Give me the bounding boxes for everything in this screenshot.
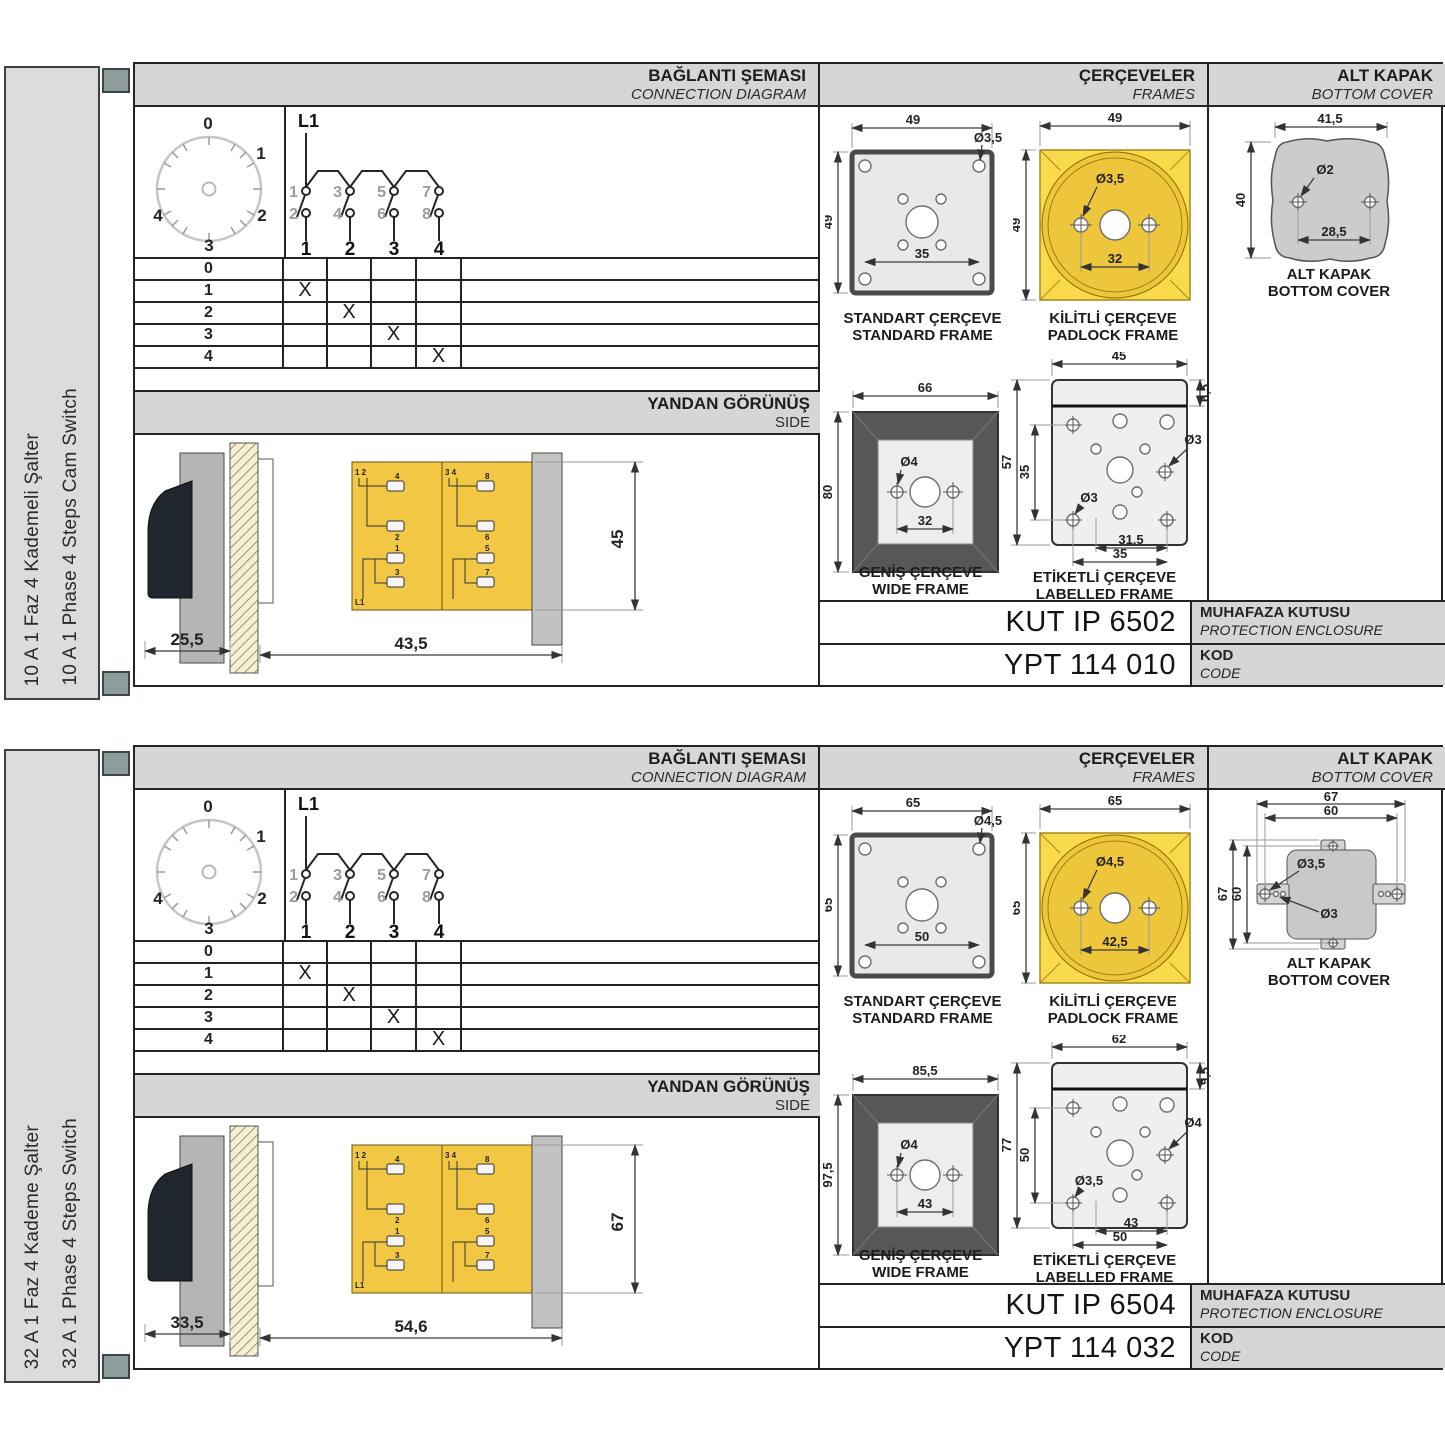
dim-hole-spacing: 35 bbox=[915, 246, 929, 261]
module-label-2: 3 4 bbox=[445, 1151, 457, 1160]
dial-pos-3: 3 bbox=[204, 919, 213, 938]
table-cell bbox=[372, 303, 417, 323]
dim-frame-height: 49 bbox=[1013, 218, 1023, 232]
dial-pos-2: 2 bbox=[257, 206, 266, 225]
contact-1: 1 bbox=[289, 867, 298, 884]
table-cell bbox=[417, 281, 462, 301]
header-connection-tr: BAĞLANTI ŞEMASI bbox=[135, 66, 806, 86]
standard-frame-caption: STANDART ÇERÇEVE STANDARD FRAME bbox=[825, 993, 1020, 1027]
caption-tr: ALT KAPAK bbox=[1213, 955, 1445, 972]
x-mark: X bbox=[372, 1008, 417, 1028]
terminal-1: 1 bbox=[395, 544, 400, 553]
row-label: 4 bbox=[135, 347, 284, 367]
x-mark: X bbox=[372, 325, 417, 345]
bottom-cover-caption: ALT KAPAK BOTTOM COVER bbox=[1213, 266, 1445, 300]
dim-hole-dia: Ø3,5 bbox=[1096, 171, 1124, 186]
dim-frame-width: 49 bbox=[906, 112, 920, 127]
contact-1: 1 bbox=[289, 184, 298, 201]
header-side-tr: YANDAN GÖRÜNÜŞ bbox=[135, 394, 810, 414]
connection-schematic: L1 1 3 5 7 2 bbox=[286, 790, 820, 940]
contact-3: 3 bbox=[333, 184, 342, 201]
caption-tr: GENİŞ ÇERÇEVE bbox=[823, 1247, 1018, 1264]
padlock-frame-caption: KİLİTLİ ÇERÇEVE PADLOCK FRAME bbox=[1013, 310, 1213, 344]
contact-4: 4 bbox=[333, 889, 342, 906]
front-plate bbox=[258, 459, 273, 603]
enclosure-label-en: PROTECTION ENCLOSURE bbox=[1200, 622, 1445, 639]
dial-pos-4: 4 bbox=[153, 206, 163, 225]
header-frames-en: FRAMES bbox=[820, 86, 1195, 104]
dim-cover-inner-w: 60 bbox=[1324, 803, 1338, 818]
dim-frame-width: 65 bbox=[1108, 793, 1122, 808]
dim-hole-dia: Ø4,5 bbox=[1096, 854, 1124, 869]
table-cell bbox=[328, 1008, 372, 1028]
dim-hole-dia: Ø3,5 bbox=[974, 130, 1002, 145]
terminal-6: 6 bbox=[485, 533, 490, 542]
header-side-view: YANDAN GÖRÜNÜŞ SIDE bbox=[135, 390, 820, 435]
dim-handle-depth: 25,5 bbox=[170, 630, 203, 649]
table-cell bbox=[372, 964, 417, 984]
table-cell bbox=[417, 303, 462, 323]
terminal-1: 1 bbox=[395, 1227, 400, 1236]
x-mark: X bbox=[284, 281, 328, 301]
output-1: 1 bbox=[301, 922, 312, 940]
product-title-tr: 32 A 1 Faz 4 Kademe Şalter bbox=[22, 1125, 44, 1369]
dim-cover-width: 41,5 bbox=[1317, 112, 1342, 126]
table-cell bbox=[372, 281, 417, 301]
dim-strip-height: 6,5 bbox=[1197, 384, 1212, 402]
output-2: 2 bbox=[345, 239, 356, 257]
row-label: 1 bbox=[135, 281, 284, 301]
table-row: 3 X bbox=[135, 1008, 820, 1030]
dim-hole-spacing: 43 bbox=[918, 1196, 932, 1211]
product-title-en: 32 A 1 Phase 4 Steps Switch bbox=[60, 1118, 82, 1369]
dim-bottom-1: 43 bbox=[1124, 1215, 1138, 1230]
dim-bottom-2: 50 bbox=[1113, 1229, 1127, 1244]
row-label: 0 bbox=[135, 942, 284, 962]
binding-mark-top bbox=[102, 68, 130, 93]
dim-body-depth: 43,5 bbox=[394, 634, 427, 653]
table-cell bbox=[372, 259, 417, 279]
caption-en: STANDARD FRAME bbox=[825, 327, 1020, 344]
labelled-frame-drawing: 45 6,5 57 35 Ø3 Ø3 31,5 35 bbox=[997, 352, 1212, 567]
labelled-frame-caption: ETİKETLİ ÇERÇEVE LABELLED FRAME bbox=[997, 1252, 1212, 1286]
contact-4: 4 bbox=[333, 206, 342, 223]
code-row: YPT 114 032 KOD CODE bbox=[820, 1326, 1445, 1368]
dim-frame-width: 62 bbox=[1112, 1035, 1126, 1046]
side-view-drawing: 1 2 3 4 4 2 1 3 8 6 5 7 L1 33,5 54,6 bbox=[135, 1118, 820, 1368]
table-row: 4 X bbox=[135, 1030, 820, 1052]
wide-frame-caption: GENİŞ ÇERÇEVE WIDE FRAME bbox=[823, 564, 1018, 598]
dim-frame-height: 97,5 bbox=[823, 1162, 835, 1187]
dim-frame-width: 66 bbox=[918, 382, 932, 395]
caption-tr: GENİŞ ÇERÇEVE bbox=[823, 564, 1018, 581]
terminal-4: 4 bbox=[395, 1155, 400, 1164]
enclosure-row: KUT IP 6502 MUHAFAZA KUTUSU PROTECTION E… bbox=[820, 600, 1445, 643]
terminal-l1: L1 bbox=[355, 598, 365, 607]
dim-inner-height: 35 bbox=[1017, 465, 1032, 479]
dim-frame-height: 65 bbox=[825, 898, 835, 912]
caption-en: WIDE FRAME bbox=[823, 1264, 1018, 1281]
switch-contacts bbox=[297, 187, 443, 241]
terminal-5: 5 bbox=[485, 1227, 490, 1236]
contact-7: 7 bbox=[422, 184, 431, 201]
binding-mark-bottom bbox=[102, 1354, 130, 1379]
terminal-4: 4 bbox=[395, 472, 400, 481]
table-cell bbox=[284, 986, 328, 1006]
header-connection-diagram: BAĞLANTI ŞEMASI CONNECTION DIAGRAM bbox=[135, 747, 820, 790]
dim-hole-dia: Ø4 bbox=[900, 454, 918, 469]
sidebar: 10 A 1 Faz 4 Kademeli Şalter 10 A 1 Phas… bbox=[4, 66, 100, 700]
table-cell bbox=[328, 281, 372, 301]
x-mark: X bbox=[328, 303, 372, 323]
contact-8: 8 bbox=[422, 889, 431, 906]
dim-cover-inner-h: 60 bbox=[1229, 887, 1244, 901]
enclosure-label: MUHAFAZA KUTUSU PROTECTION ENCLOSURE bbox=[1190, 602, 1445, 643]
terminal-2: 2 bbox=[395, 533, 400, 542]
contact-5: 5 bbox=[377, 867, 386, 884]
mounting-panel bbox=[230, 1126, 258, 1356]
dial-pos-4: 4 bbox=[153, 889, 163, 908]
bottom-cover-caption: ALT KAPAK BOTTOM COVER bbox=[1213, 955, 1445, 989]
caption-en: PADLOCK FRAME bbox=[1013, 327, 1213, 344]
enclosure-code: KUT IP 6502 bbox=[820, 602, 1190, 643]
product-section-10a: 10 A 1 Faz 4 Kademeli Şalter 10 A 1 Phas… bbox=[0, 62, 1445, 707]
output-4: 4 bbox=[434, 239, 445, 257]
dim-frame-width: 85,5 bbox=[912, 1065, 937, 1078]
table-row: 2 X bbox=[135, 986, 820, 1008]
terminal-2: 2 bbox=[395, 1216, 400, 1225]
terminal-7: 7 bbox=[485, 568, 490, 577]
front-plate bbox=[258, 1142, 273, 1286]
header-connection-en: CONNECTION DIAGRAM bbox=[135, 769, 806, 787]
table-cell bbox=[372, 986, 417, 1006]
header-bottom-cover: ALT KAPAK BOTTOM COVER bbox=[1209, 747, 1445, 790]
table-row: 1 X bbox=[135, 281, 820, 303]
dim-hole-dia: Ø4 bbox=[900, 1137, 918, 1152]
contact-2: 2 bbox=[289, 206, 298, 223]
header-cover-tr: ALT KAPAK bbox=[1209, 66, 1433, 86]
table-cell bbox=[284, 942, 328, 962]
back-plate bbox=[532, 453, 562, 645]
dim-frame-width: 49 bbox=[1108, 110, 1122, 125]
output-2: 2 bbox=[345, 922, 356, 940]
row-label: 3 bbox=[135, 1008, 284, 1028]
table-cell bbox=[328, 259, 372, 279]
table-filler bbox=[462, 281, 820, 301]
dial-ticks bbox=[157, 820, 261, 924]
standard-frame-drawing: 65 Ø4,5 65 50 bbox=[825, 793, 1020, 993]
table-filler bbox=[462, 986, 820, 1006]
dim-hole-dia-right: Ø4 bbox=[1184, 1115, 1202, 1130]
switch-contacts bbox=[297, 870, 443, 924]
terminal-7: 7 bbox=[485, 1251, 490, 1260]
dim-hole-dia-right: Ø3 bbox=[1184, 432, 1201, 447]
output-1: 1 bbox=[301, 239, 312, 257]
bottom-cover-drawing: 67 60 67 60 Ø3,5 Ø3 bbox=[1213, 792, 1445, 952]
caption-tr: KİLİTLİ ÇERÇEVE bbox=[1013, 993, 1213, 1010]
rotary-dial-drawing: 0 1 2 3 4 bbox=[135, 107, 284, 257]
table-cell bbox=[417, 325, 462, 345]
code-label: KOD CODE bbox=[1190, 645, 1445, 685]
circuit-box: L1 1 3 5 7 2 bbox=[286, 790, 820, 940]
row-label: 1 bbox=[135, 964, 284, 984]
dim-frame-width: 65 bbox=[906, 795, 920, 810]
contact-6: 6 bbox=[377, 206, 386, 223]
caption-en: BOTTOM COVER bbox=[1213, 972, 1445, 989]
mounting-panel bbox=[230, 443, 258, 673]
padlock-frame-drawing: 65 65 Ø4,5 42,5 bbox=[1013, 793, 1213, 993]
dial-pos-2: 2 bbox=[257, 889, 266, 908]
labelled-frame-caption: ETİKETLİ ÇERÇEVE LABELLED FRAME bbox=[997, 569, 1212, 603]
dim-bottom-1: 31,5 bbox=[1118, 532, 1143, 547]
dim-hole-dia-left: Ø3,5 bbox=[1075, 1173, 1103, 1188]
caption-tr: STANDART ÇERÇEVE bbox=[825, 993, 1020, 1010]
header-frames: ÇERÇEVELER FRAMES bbox=[820, 747, 1209, 790]
header-frames-tr: ÇERÇEVELER bbox=[820, 66, 1195, 86]
dim-hole-spacing: 28,5 bbox=[1321, 224, 1346, 239]
dial-pos-1: 1 bbox=[256, 827, 265, 846]
header-side-en: SIDE bbox=[135, 414, 810, 432]
terminal-l1: L1 bbox=[355, 1281, 365, 1290]
dim-cover-height: 40 bbox=[1233, 193, 1248, 207]
dim-strip-height: 9,5 bbox=[1197, 1067, 1212, 1085]
enclosure-label-en: PROTECTION ENCLOSURE bbox=[1200, 1305, 1445, 1322]
row-label: 0 bbox=[135, 259, 284, 279]
side-view-drawing: 1 2 3 4 4 2 1 3 8 6 5 7 L1 25,5 43,5 bbox=[135, 435, 820, 685]
dim-hole-dia: Ø2 bbox=[1316, 162, 1333, 177]
enclosure-label-tr: MUHAFAZA KUTUSU bbox=[1200, 1287, 1445, 1305]
x-mark: X bbox=[417, 1030, 462, 1050]
wide-frame-caption: GENİŞ ÇERÇEVE WIDE FRAME bbox=[823, 1247, 1018, 1281]
padlock-frame-drawing: 49 49 Ø3,5 32 bbox=[1013, 110, 1213, 310]
header-cover-en: BOTTOM COVER bbox=[1209, 769, 1433, 787]
header-frames: ÇERÇEVELER FRAMES bbox=[820, 64, 1209, 107]
rotary-dial-box: 0 1 2 3 4 bbox=[135, 790, 286, 940]
dim-frame-width: 45 bbox=[1112, 352, 1126, 363]
terminal-8: 8 bbox=[485, 1155, 490, 1164]
product-code: YPT 114 010 bbox=[820, 645, 1190, 685]
table-cell bbox=[284, 1030, 328, 1050]
dial-ticks bbox=[157, 137, 261, 241]
product-section-32a: 32 A 1 Faz 4 Kademe Şalter 32 A 1 Phase … bbox=[0, 745, 1445, 1390]
table-row: 3 X bbox=[135, 325, 820, 347]
caption-tr: ETİKETLİ ÇERÇEVE bbox=[997, 569, 1212, 586]
table-cell bbox=[417, 986, 462, 1006]
header-connection-tr: BAĞLANTI ŞEMASI bbox=[135, 749, 806, 769]
product-title-tr: 10 A 1 Faz 4 Kademeli Şalter bbox=[22, 433, 44, 686]
table-cell bbox=[372, 347, 417, 367]
caption-en: BOTTOM COVER bbox=[1213, 283, 1445, 300]
dim-hole-small: Ø3 bbox=[1320, 906, 1337, 921]
table-filler bbox=[462, 1030, 820, 1050]
table-cell bbox=[417, 1008, 462, 1028]
table-cell bbox=[417, 942, 462, 962]
circuit-box: L1 1 3 5 7 2 bbox=[286, 107, 820, 257]
dim-inner-height: 50 bbox=[1017, 1148, 1032, 1162]
code-row: YPT 114 010 KOD CODE bbox=[820, 643, 1445, 685]
output-3: 3 bbox=[389, 239, 400, 257]
switching-table: 0 1 X 2 X 3 X 4 X bbox=[135, 940, 820, 1052]
supply-label: L1 bbox=[298, 111, 319, 131]
header-connection-diagram: BAĞLANTI ŞEMASI CONNECTION DIAGRAM bbox=[135, 64, 820, 107]
module-label-2: 3 4 bbox=[445, 468, 457, 477]
row-label: 2 bbox=[135, 986, 284, 1006]
header-frames-tr: ÇERÇEVELER bbox=[820, 749, 1195, 769]
contact-3: 3 bbox=[333, 867, 342, 884]
dim-hole-spacing: 42,5 bbox=[1102, 934, 1127, 949]
row-label: 3 bbox=[135, 325, 284, 345]
header-side-en: SIDE bbox=[135, 1097, 810, 1115]
dim-body-depth: 54,6 bbox=[394, 1317, 427, 1336]
sidebar: 32 A 1 Faz 4 Kademe Şalter 32 A 1 Phase … bbox=[4, 749, 100, 1383]
table-cell bbox=[328, 964, 372, 984]
header-frames-en: FRAMES bbox=[820, 769, 1195, 787]
contact-6: 6 bbox=[377, 889, 386, 906]
dim-frame-height: 80 bbox=[823, 485, 835, 499]
code-label-tr: KOD bbox=[1200, 1330, 1445, 1348]
table-cell bbox=[328, 1030, 372, 1050]
dim-cover-outer-h: 67 bbox=[1215, 887, 1230, 901]
table-cell bbox=[284, 1008, 328, 1028]
header-side-view: YANDAN GÖRÜNÜŞ SIDE bbox=[135, 1073, 820, 1118]
caption-tr: ETİKETLİ ÇERÇEVE bbox=[997, 1252, 1212, 1269]
caption-tr: KİLİTLİ ÇERÇEVE bbox=[1013, 310, 1213, 327]
standard-frame-drawing: 49 Ø3,5 49 35 bbox=[825, 110, 1020, 310]
header-bottom-cover: ALT KAPAK BOTTOM COVER bbox=[1209, 64, 1445, 107]
code-label-en: CODE bbox=[1200, 1348, 1445, 1365]
row-label: 2 bbox=[135, 303, 284, 323]
switching-table: 0 1 X 2 X 3 X 4 X bbox=[135, 257, 820, 369]
table-cell bbox=[372, 942, 417, 962]
header-connection-en: CONNECTION DIAGRAM bbox=[135, 86, 806, 104]
dial-pos-1: 1 bbox=[256, 144, 265, 163]
caption-en: STANDARD FRAME bbox=[825, 1010, 1020, 1027]
table-row: 2 X bbox=[135, 303, 820, 325]
table-filler bbox=[462, 303, 820, 323]
table-cell bbox=[417, 259, 462, 279]
code-label: KOD CODE bbox=[1190, 1328, 1445, 1368]
contact-2: 2 bbox=[289, 889, 298, 906]
datasheet-main: BAĞLANTI ŞEMASI CONNECTION DIAGRAM ÇERÇE… bbox=[133, 62, 1443, 687]
dial-pos-3: 3 bbox=[204, 236, 213, 255]
binding-mark-top bbox=[102, 751, 130, 776]
module-label-1: 1 2 bbox=[355, 1151, 367, 1160]
connection-schematic: L1 1 3 5 7 2 bbox=[286, 107, 820, 257]
rotary-dial-drawing: 0 1 2 3 4 bbox=[135, 790, 284, 940]
terminal-3: 3 bbox=[395, 1251, 400, 1260]
dim-body-height: 67 bbox=[608, 1213, 627, 1232]
table-cell bbox=[328, 942, 372, 962]
header-side-tr: YANDAN GÖRÜNÜŞ bbox=[135, 1077, 810, 1097]
table-filler bbox=[462, 325, 820, 345]
code-label-tr: KOD bbox=[1200, 647, 1445, 665]
output-3: 3 bbox=[389, 922, 400, 940]
header-cover-en: BOTTOM COVER bbox=[1209, 86, 1433, 104]
dim-hole-spacing: 32 bbox=[918, 513, 932, 528]
contact-5: 5 bbox=[377, 184, 386, 201]
back-plate bbox=[532, 1136, 562, 1328]
table-cell bbox=[284, 347, 328, 367]
x-mark: X bbox=[417, 347, 462, 367]
dim-hole-dia: Ø4,5 bbox=[974, 813, 1002, 828]
dim-hole-dia-left: Ø3 bbox=[1080, 490, 1097, 505]
dial-pos-0: 0 bbox=[203, 797, 212, 816]
enclosure-label: MUHAFAZA KUTUSU PROTECTION ENCLOSURE bbox=[1190, 1285, 1445, 1326]
table-filler bbox=[462, 1008, 820, 1028]
table-cell bbox=[284, 325, 328, 345]
table-cell bbox=[328, 325, 372, 345]
table-filler bbox=[462, 347, 820, 367]
dim-frame-height: 57 bbox=[999, 455, 1014, 469]
row-label: 4 bbox=[135, 1030, 284, 1050]
supply-label: L1 bbox=[298, 794, 319, 814]
x-mark: X bbox=[284, 964, 328, 984]
terminal-5: 5 bbox=[485, 544, 490, 553]
enclosure-label-tr: MUHAFAZA KUTUSU bbox=[1200, 604, 1445, 622]
dial-pos-0: 0 bbox=[203, 114, 212, 133]
labelled-frame-drawing: 62 9,5 77 50 Ø4 Ø3,5 43 50 bbox=[997, 1035, 1212, 1250]
standard-frame-caption: STANDART ÇERÇEVE STANDARD FRAME bbox=[825, 310, 1020, 344]
table-filler bbox=[462, 259, 820, 279]
dim-hole-spacing: 50 bbox=[915, 929, 929, 944]
module-label-1: 1 2 bbox=[355, 468, 367, 477]
datasheet-main: BAĞLANTI ŞEMASI CONNECTION DIAGRAM ÇERÇE… bbox=[133, 745, 1443, 1370]
dim-hole-tab: Ø3,5 bbox=[1297, 856, 1325, 871]
product-title-en: 10 A 1 Phase 4 Steps Cam Switch bbox=[60, 388, 82, 686]
enclosure-code: KUT IP 6504 bbox=[820, 1285, 1190, 1326]
switch-handle bbox=[148, 481, 192, 598]
padlock-frame-caption: KİLİTLİ ÇERÇEVE PADLOCK FRAME bbox=[1013, 993, 1213, 1027]
bottom-cover-drawing: 41,5 40 Ø2 28,5 bbox=[1213, 112, 1445, 262]
table-cell bbox=[372, 1030, 417, 1050]
dim-handle-depth: 33,5 bbox=[170, 1313, 203, 1332]
table-row: 4 X bbox=[135, 347, 820, 369]
output-4: 4 bbox=[434, 922, 445, 940]
header-cover-tr: ALT KAPAK bbox=[1209, 749, 1433, 769]
table-cell bbox=[417, 964, 462, 984]
code-label-en: CODE bbox=[1200, 665, 1445, 682]
caption-en: WIDE FRAME bbox=[823, 581, 1018, 598]
x-mark: X bbox=[328, 986, 372, 1006]
table-cell bbox=[284, 303, 328, 323]
contact-7: 7 bbox=[422, 867, 431, 884]
table-filler bbox=[462, 964, 820, 984]
product-code: YPT 114 032 bbox=[820, 1328, 1190, 1368]
enclosure-row: KUT IP 6504 MUHAFAZA KUTUSU PROTECTION E… bbox=[820, 1283, 1445, 1326]
dim-frame-height: 49 bbox=[825, 215, 835, 229]
table-filler bbox=[462, 942, 820, 962]
contact-8: 8 bbox=[422, 206, 431, 223]
table-row: 0 bbox=[135, 259, 820, 281]
dim-body-height: 45 bbox=[608, 530, 627, 549]
caption-tr: ALT KAPAK bbox=[1213, 266, 1445, 283]
dim-frame-height: 77 bbox=[999, 1138, 1014, 1152]
binding-mark-bottom bbox=[102, 671, 130, 696]
caption-en: PADLOCK FRAME bbox=[1013, 1010, 1213, 1027]
switch-handle bbox=[148, 1164, 192, 1281]
dim-bottom-2: 35 bbox=[1113, 546, 1127, 561]
table-row: 1 X bbox=[135, 964, 820, 986]
terminal-8: 8 bbox=[485, 472, 490, 481]
terminal-3: 3 bbox=[395, 568, 400, 577]
rotary-dial-box: 0 1 2 3 4 bbox=[135, 107, 286, 257]
terminal-6: 6 bbox=[485, 1216, 490, 1225]
dim-frame-height: 65 bbox=[1013, 901, 1023, 915]
table-cell bbox=[328, 347, 372, 367]
table-cell bbox=[284, 259, 328, 279]
table-row: 0 bbox=[135, 942, 820, 964]
dim-hole-spacing: 32 bbox=[1108, 251, 1122, 266]
